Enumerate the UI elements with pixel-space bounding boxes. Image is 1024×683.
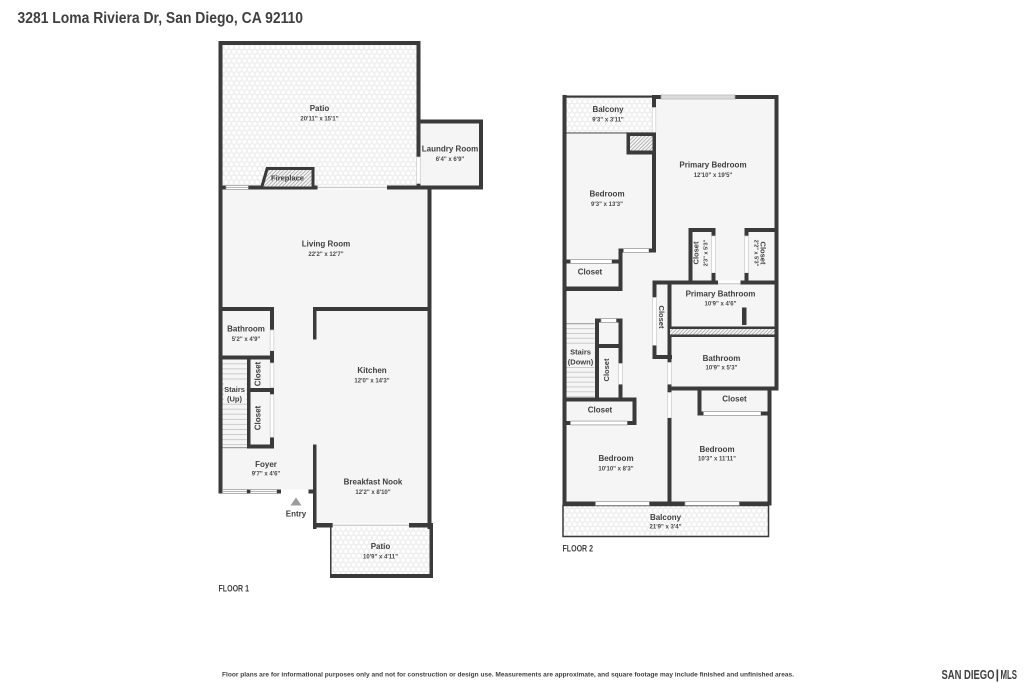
svg-text:10'3" x 11'11": 10'3" x 11'11" xyxy=(698,456,736,462)
svg-text:Bedroom: Bedroom xyxy=(589,190,624,199)
svg-text:9'3" x 3'11": 9'3" x 3'11" xyxy=(592,117,624,123)
svg-text:2'3" x 5'3": 2'3" x 5'3" xyxy=(704,239,710,266)
svg-text:(Down): (Down) xyxy=(568,358,594,367)
svg-text:Bathroom: Bathroom xyxy=(703,354,741,363)
svg-text:Closet: Closet xyxy=(588,406,613,415)
svg-text:Closet: Closet xyxy=(578,268,603,277)
svg-text:9'7" x 4'6": 9'7" x 4'6" xyxy=(252,471,281,477)
svg-text:Laundry Room: Laundry Room xyxy=(422,145,478,154)
svg-text:Bedroom: Bedroom xyxy=(699,445,734,454)
svg-text:Balcony: Balcony xyxy=(650,513,682,522)
svg-text:10'9" x 4'11": 10'9" x 4'11" xyxy=(363,554,398,560)
svg-text:|: | xyxy=(996,667,1000,682)
svg-text:Living Room: Living Room xyxy=(302,240,350,249)
svg-text:Kitchen: Kitchen xyxy=(357,366,386,375)
svg-text:2'2" x 5'3": 2'2" x 5'3" xyxy=(753,240,759,267)
svg-text:Primary Bedroom: Primary Bedroom xyxy=(679,161,746,170)
svg-text:Breakfast Nook: Breakfast Nook xyxy=(344,478,403,487)
svg-text:Balcony: Balcony xyxy=(592,105,624,114)
svg-text:Stairs: Stairs xyxy=(570,348,591,357)
svg-text:MLS: MLS xyxy=(1001,667,1018,682)
svg-text:Closet: Closet xyxy=(759,242,768,265)
svg-text:FLOOR 1: FLOOR 1 xyxy=(219,584,250,594)
svg-text:10'9" x 5'3": 10'9" x 5'3" xyxy=(706,365,738,371)
svg-text:Closet: Closet xyxy=(254,361,263,386)
svg-text:Foyer: Foyer xyxy=(255,460,277,469)
svg-text:FLOOR 2: FLOOR 2 xyxy=(563,544,594,554)
svg-text:Closet: Closet xyxy=(722,395,747,404)
svg-text:Fireplace: Fireplace xyxy=(271,173,304,182)
svg-text:Closet: Closet xyxy=(692,241,701,264)
svg-text:22'2" x 12'7": 22'2" x 12'7" xyxy=(308,252,343,258)
svg-text:12'10" x 19'5": 12'10" x 19'5" xyxy=(694,173,733,179)
svg-text:Stairs: Stairs xyxy=(224,385,245,394)
svg-text:10'10" x 8'3": 10'10" x 8'3" xyxy=(598,466,633,472)
svg-text:Bedroom: Bedroom xyxy=(598,454,633,463)
svg-text:5'2" x 4'9": 5'2" x 4'9" xyxy=(232,337,261,343)
svg-text:Closet: Closet xyxy=(254,405,263,430)
svg-text:6'4" x 6'9": 6'4" x 6'9" xyxy=(436,157,465,163)
svg-text:Patio: Patio xyxy=(371,542,391,551)
svg-text:3281 Loma Riviera Dr, San Dieg: 3281 Loma Riviera Dr, San Diego, CA 9211… xyxy=(18,10,304,27)
svg-text:10'9" x 4'6": 10'9" x 4'6" xyxy=(705,301,737,307)
svg-text:Bathroom: Bathroom xyxy=(227,325,265,334)
svg-text:Primary Bathroom: Primary Bathroom xyxy=(686,290,756,299)
svg-text:Closet: Closet xyxy=(657,306,666,329)
svg-text:SAN DIEGO: SAN DIEGO xyxy=(942,667,995,682)
svg-text:(Up): (Up) xyxy=(227,395,242,404)
svg-text:12'0" x 14'3": 12'0" x 14'3" xyxy=(354,378,389,384)
svg-text:Floor plans are for informatio: Floor plans are for informational purpos… xyxy=(222,672,794,679)
svg-text:9'3" x 13'3": 9'3" x 13'3" xyxy=(591,202,623,208)
svg-text:Entry: Entry xyxy=(286,510,307,519)
svg-text:Closet: Closet xyxy=(602,358,611,381)
svg-text:12'2" x 8'10": 12'2" x 8'10" xyxy=(355,490,390,496)
svg-text:20'11" x 15'1": 20'11" x 15'1" xyxy=(300,116,338,122)
svg-text:Patio: Patio xyxy=(310,104,330,113)
svg-text:21'9" x 3'4": 21'9" x 3'4" xyxy=(650,524,682,530)
